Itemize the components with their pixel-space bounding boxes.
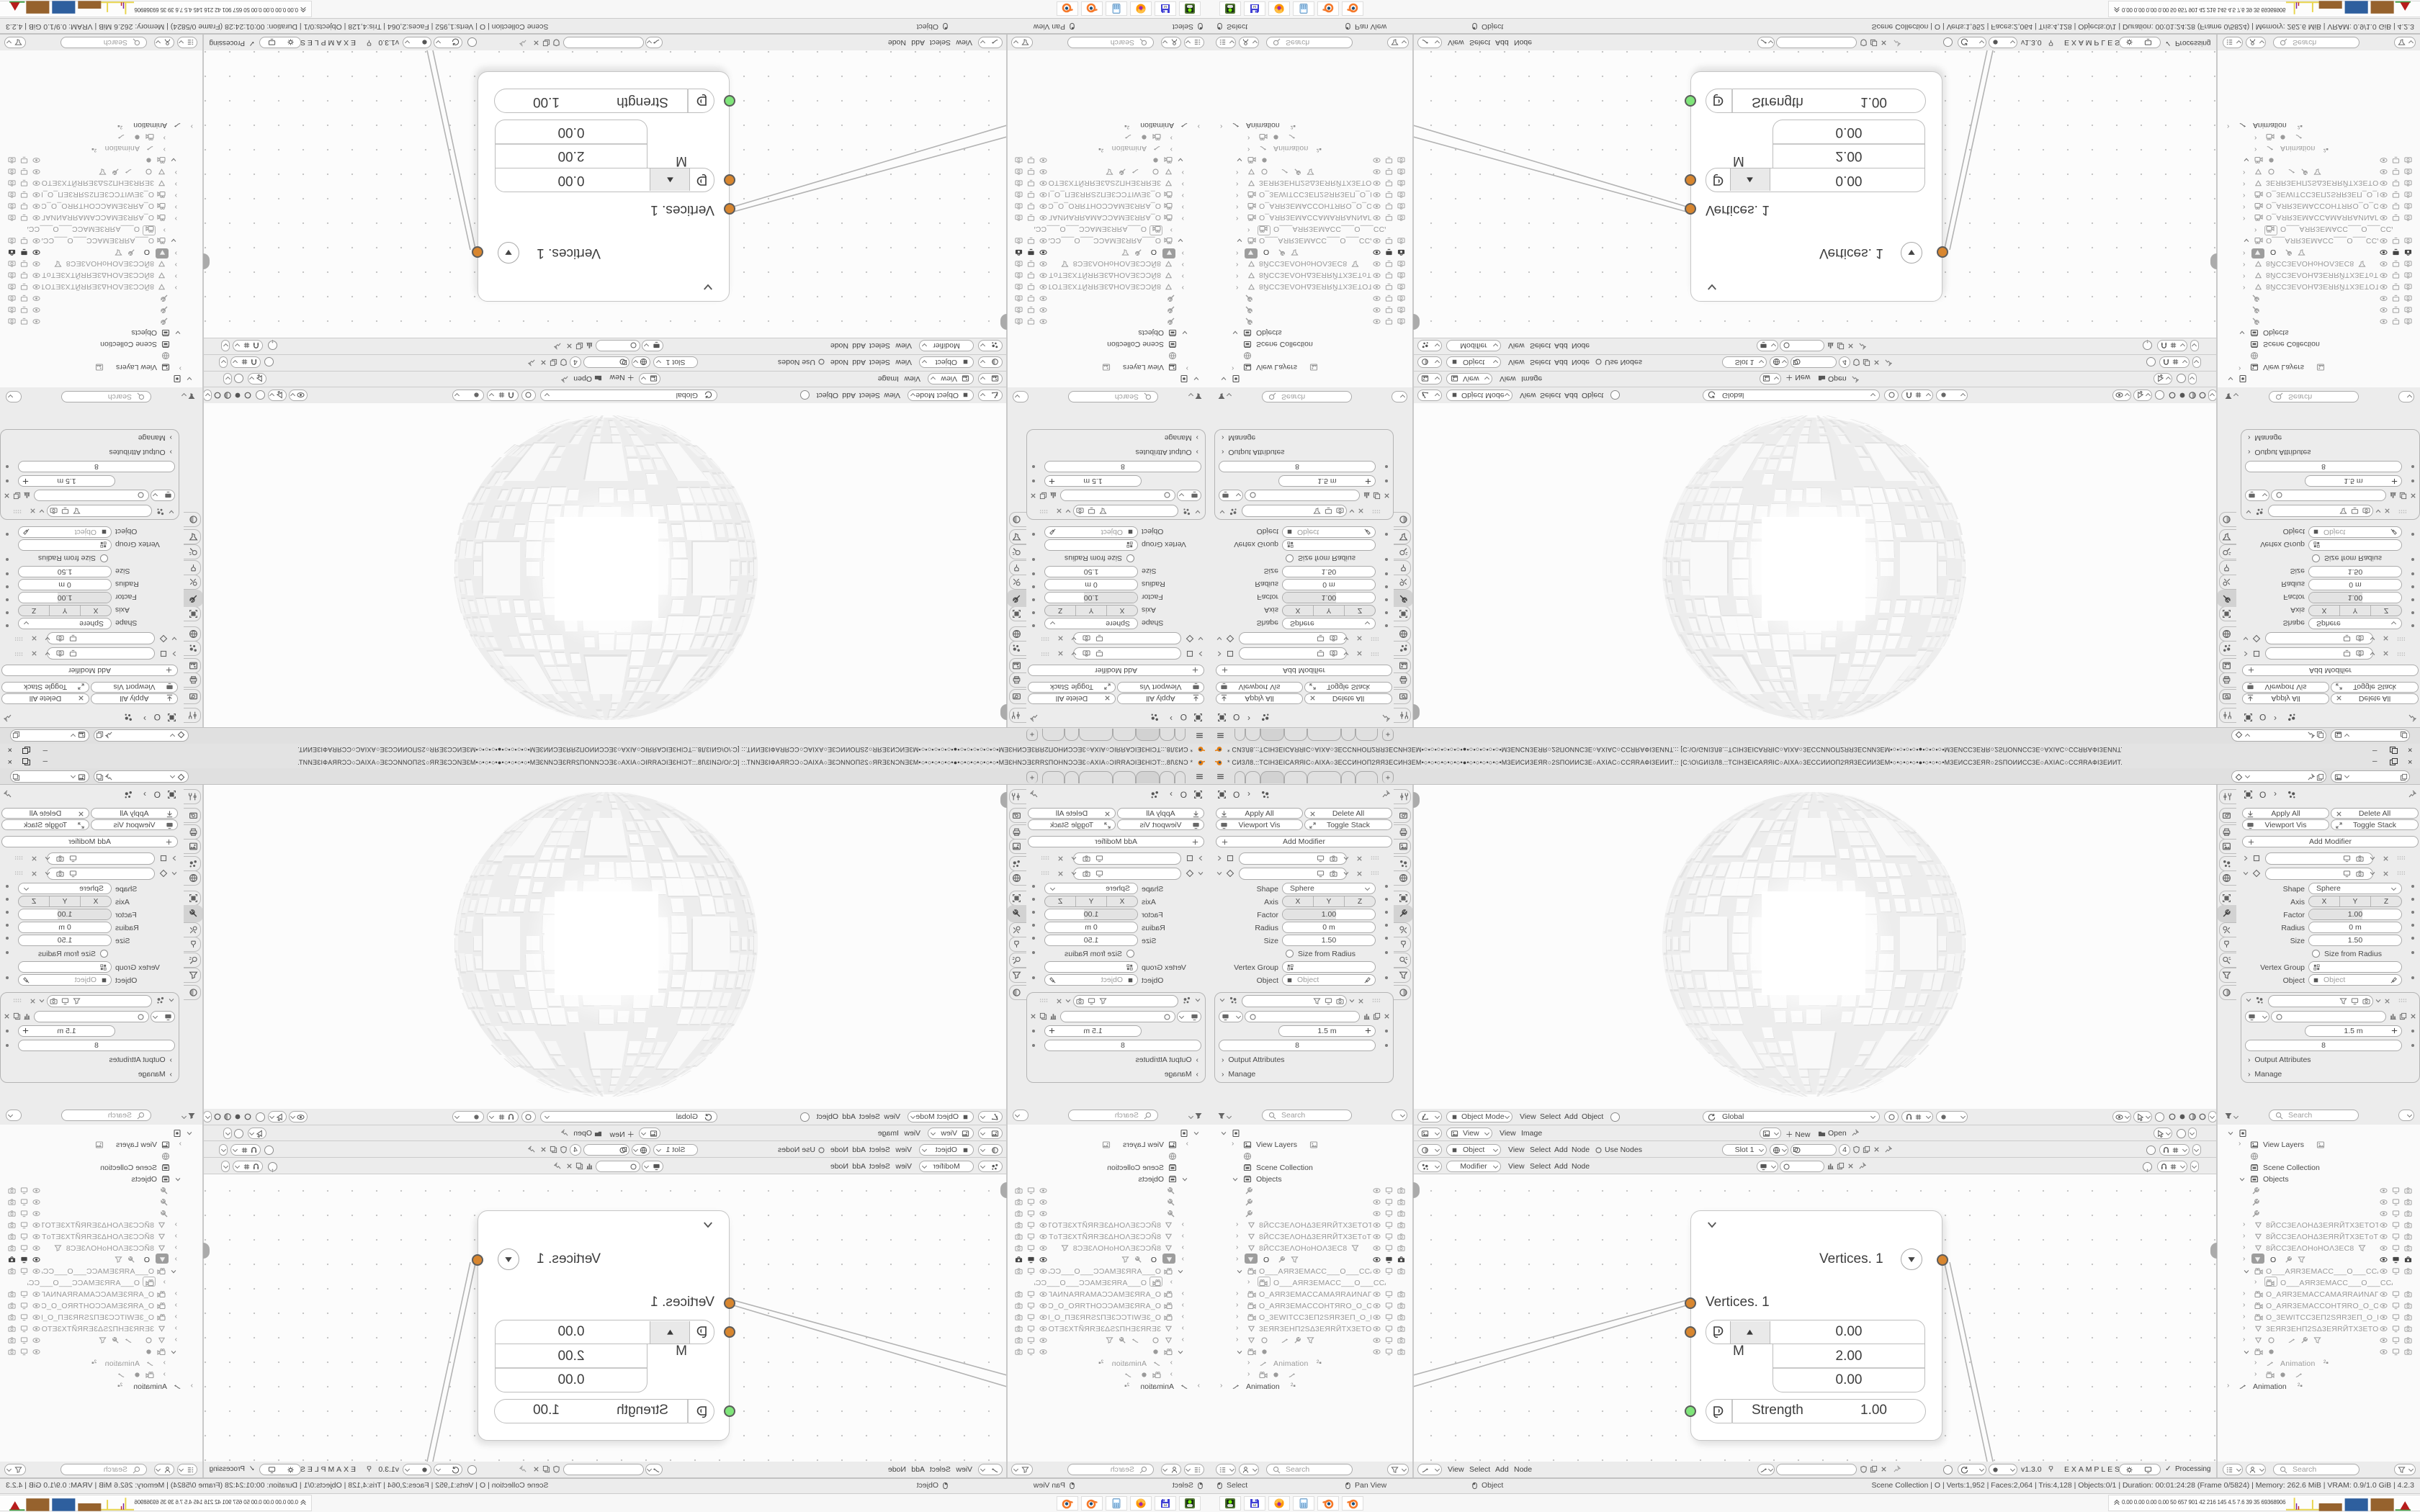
svg-text:64: 64 — [1163, 1503, 1168, 1507]
svg-text:64: 64 — [1252, 1503, 1257, 1507]
svg-text:64: 64 — [1252, 5, 1257, 9]
svg-text:64: 64 — [1163, 5, 1168, 9]
